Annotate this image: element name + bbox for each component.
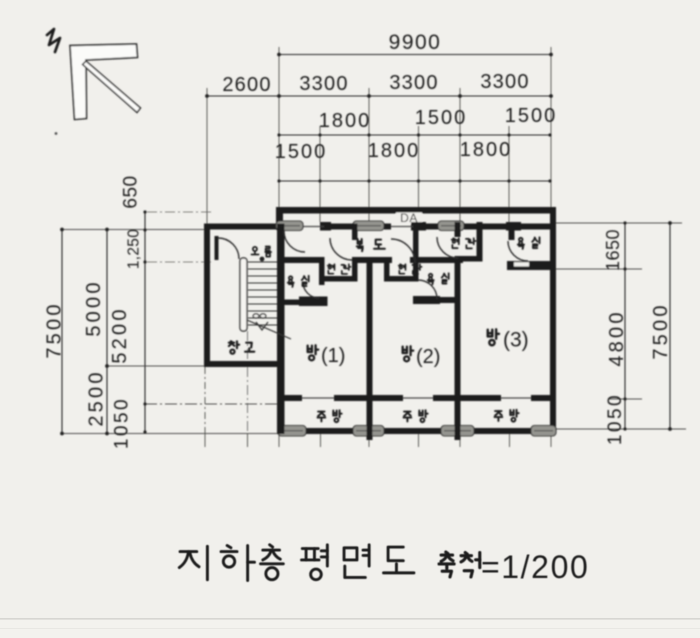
svg-text:1800: 1800 bbox=[460, 139, 513, 161]
svg-text:(1): (1) bbox=[321, 345, 345, 367]
svg-text:1500: 1500 bbox=[505, 105, 558, 127]
svg-text:=1/200: =1/200 bbox=[481, 549, 589, 585]
svg-text:3300: 3300 bbox=[480, 71, 529, 93]
svg-text:3300: 3300 bbox=[299, 73, 348, 95]
svg-text:1,250: 1,250 bbox=[126, 229, 143, 269]
svg-text:3300: 3300 bbox=[389, 72, 438, 94]
svg-text:4800: 4800 bbox=[606, 309, 628, 366]
svg-text:2600: 2600 bbox=[222, 74, 271, 96]
svg-text:1050: 1050 bbox=[112, 397, 133, 449]
svg-text:5200: 5200 bbox=[109, 306, 131, 363]
svg-text:(3): (3) bbox=[503, 329, 529, 352]
svg-text:1500: 1500 bbox=[275, 141, 328, 163]
svg-text:1050: 1050 bbox=[605, 393, 626, 445]
svg-text:7500: 7500 bbox=[44, 301, 66, 358]
svg-text:1500: 1500 bbox=[415, 107, 468, 129]
svg-text:9900: 9900 bbox=[389, 31, 442, 54]
svg-text:1800: 1800 bbox=[319, 110, 372, 132]
svg-text:1650: 1650 bbox=[603, 229, 623, 271]
svg-text:7500: 7500 bbox=[650, 302, 672, 359]
svg-text:1800: 1800 bbox=[368, 140, 421, 162]
svg-text:(2): (2) bbox=[416, 346, 440, 368]
svg-text:650: 650 bbox=[121, 175, 142, 208]
svg-text:2500: 2500 bbox=[86, 369, 108, 426]
svg-text:5000: 5000 bbox=[83, 279, 105, 336]
